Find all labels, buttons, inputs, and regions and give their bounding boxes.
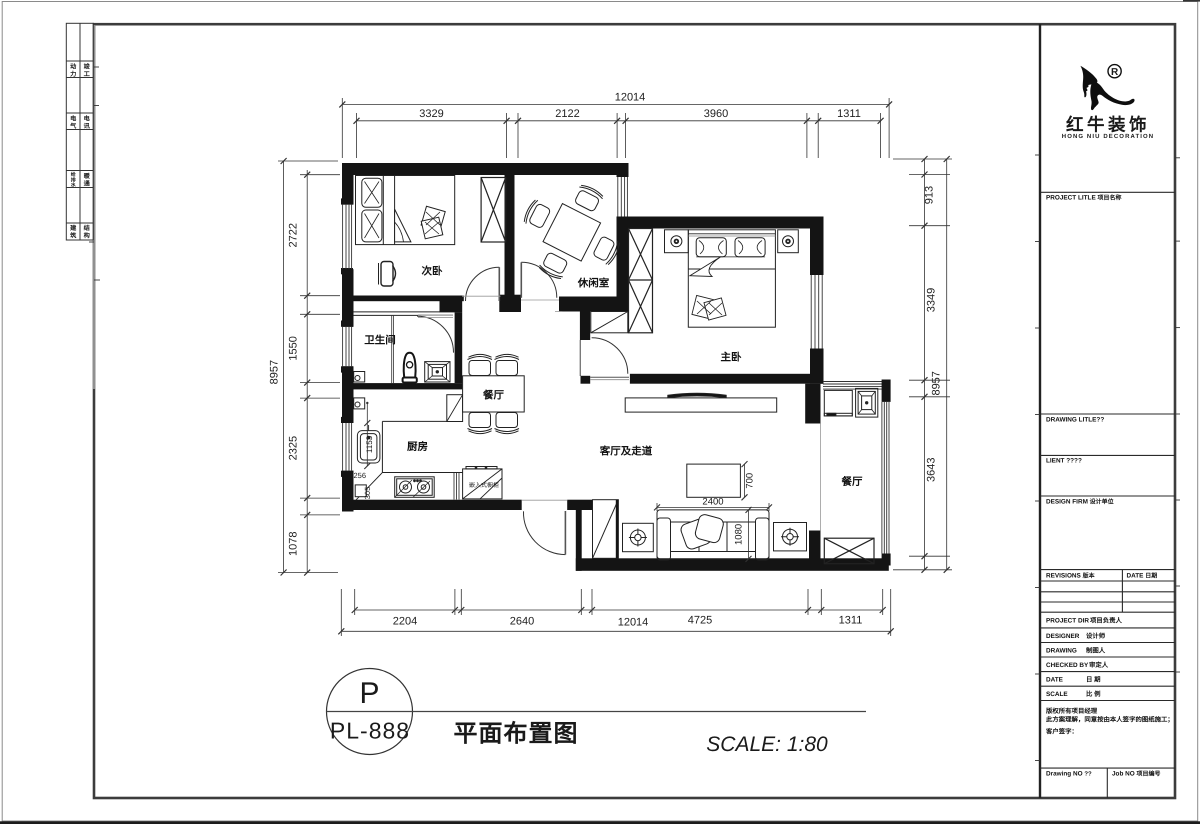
svg-text:主卧: 主卧: [721, 351, 742, 364]
svg-text:卫生间: 卫生间: [364, 334, 396, 347]
svg-text:制图人: 制图人: [1086, 647, 1106, 655]
svg-text:P: P: [359, 677, 379, 710]
svg-text:休闲室: 休闲室: [577, 277, 610, 290]
svg-text:1078: 1078: [288, 531, 300, 555]
svg-text:厨房: 厨房: [407, 440, 428, 453]
svg-text:2640: 2640: [510, 616, 534, 628]
svg-text:红牛装饰: 红牛装饰: [1066, 115, 1150, 135]
svg-text:暖: 暖: [84, 172, 91, 180]
svg-text:项目负责人: 项目负责人: [1090, 617, 1123, 625]
svg-text:筑: 筑: [70, 231, 77, 239]
svg-text:动: 动: [70, 63, 76, 71]
svg-text:平面布置图: 平面布置图: [454, 721, 579, 748]
svg-text:1311: 1311: [837, 108, 861, 120]
svg-text:1080: 1080: [734, 524, 745, 545]
svg-text:3643: 3643: [925, 457, 937, 481]
svg-text:力: 力: [70, 70, 76, 78]
svg-text:餐厅: 餐厅: [841, 475, 863, 488]
svg-text:日 期: 日 期: [1086, 676, 1101, 684]
svg-text:客厅及走道: 客厅及走道: [599, 445, 653, 458]
svg-text:SCALE: 1:80: SCALE: 1:80: [706, 733, 828, 756]
svg-text:3329: 3329: [419, 108, 443, 120]
svg-text:餐厅: 餐厅: [482, 389, 504, 402]
svg-text:客户签字：: 客户签字：: [1045, 728, 1078, 736]
svg-text:2325: 2325: [288, 436, 300, 460]
svg-text:DESIGN FIRM 设计单位: DESIGN FIRM 设计单位: [1046, 498, 1114, 506]
svg-text:电: 电: [84, 115, 91, 123]
svg-text:8957: 8957: [269, 360, 281, 384]
svg-text:竣: 竣: [84, 63, 91, 71]
svg-text:气: 气: [69, 122, 77, 130]
svg-text:设计师: 设计师: [1086, 632, 1106, 640]
svg-text:通: 通: [84, 179, 91, 187]
svg-text:3960: 3960: [704, 108, 728, 120]
svg-text:2122: 2122: [555, 108, 579, 120]
svg-text:Job NO 项目编号: Job NO 项目编号: [1112, 770, 1161, 778]
svg-text:Drawing NO ??: Drawing NO ??: [1046, 771, 1092, 778]
svg-text:此方案理解，同意按由本人签字的图纸施工；: 此方案理解，同意按由本人签字的图纸施工；: [1046, 716, 1174, 724]
svg-text:1311: 1311: [839, 615, 863, 627]
svg-text:构: 构: [84, 231, 90, 239]
svg-text:1153: 1153: [365, 435, 374, 453]
svg-text:REVISIONS 版本: REVISIONS 版本: [1046, 572, 1096, 580]
svg-text:HONG NIU DECORATION: HONG NIU DECORATION: [1062, 133, 1154, 140]
svg-text:4725: 4725: [688, 615, 712, 627]
svg-text:2204: 2204: [393, 616, 417, 628]
svg-text:R: R: [1111, 67, 1119, 78]
svg-text:3349: 3349: [925, 288, 937, 312]
svg-text:SCALE: SCALE: [1046, 691, 1068, 698]
svg-text:LIENT ????: LIENT ????: [1046, 458, 1082, 465]
svg-text:工: 工: [84, 71, 91, 78]
svg-text:913: 913: [924, 186, 936, 204]
svg-text:版权所有项目经理: 版权所有项目经理: [1046, 707, 1098, 715]
svg-text:审定人: 审定人: [1089, 661, 1109, 669]
svg-text:建: 建: [70, 224, 77, 232]
svg-text:DATE: DATE: [1046, 677, 1064, 684]
svg-text:PROJECT LITLE 项目名称: PROJECT LITLE 项目名称: [1046, 194, 1122, 202]
svg-text:水: 水: [70, 182, 77, 189]
svg-text:CHECKED BY: CHECKED BY: [1046, 662, 1089, 669]
svg-text:2400: 2400: [702, 497, 723, 508]
svg-text:12014: 12014: [615, 92, 646, 104]
svg-text:次卧: 次卧: [422, 265, 443, 278]
svg-text:结: 结: [84, 224, 90, 232]
svg-text:嵌入式橱柜: 嵌入式橱柜: [469, 481, 499, 489]
svg-text:DESIGNER: DESIGNER: [1046, 633, 1080, 640]
svg-text:2722: 2722: [288, 223, 300, 247]
svg-text:DRAWING: DRAWING: [1046, 648, 1077, 655]
svg-text:电: 电: [70, 115, 77, 123]
svg-text:DATE 日期: DATE 日期: [1127, 572, 1158, 580]
svg-text:256: 256: [354, 471, 367, 480]
svg-text:12014: 12014: [618, 617, 649, 629]
svg-text:PROJECT DIR: PROJECT DIR: [1046, 618, 1089, 625]
svg-text:讯: 讯: [84, 122, 91, 130]
svg-text:1550: 1550: [288, 336, 300, 360]
svg-text:305: 305: [363, 487, 372, 500]
svg-text:8957: 8957: [931, 371, 943, 395]
svg-text:PL-888: PL-888: [330, 718, 410, 744]
svg-text:DRAWING LITLE??: DRAWING LITLE??: [1046, 417, 1104, 424]
svg-text:比 例: 比 例: [1086, 690, 1101, 698]
svg-text:700: 700: [745, 473, 756, 489]
